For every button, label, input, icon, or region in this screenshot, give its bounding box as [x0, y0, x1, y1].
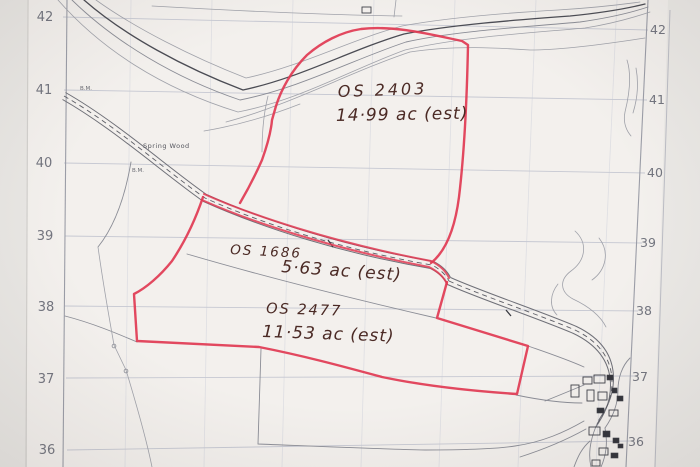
map-canvas: OS 2403 14·99 ac (est) OS 1686 5·63 ac (… [0, 0, 700, 467]
survey-map-photo: OS 2403 14·99 ac (est) OS 1686 5·63 ac (… [0, 0, 700, 467]
photo-vignette [0, 0, 700, 467]
